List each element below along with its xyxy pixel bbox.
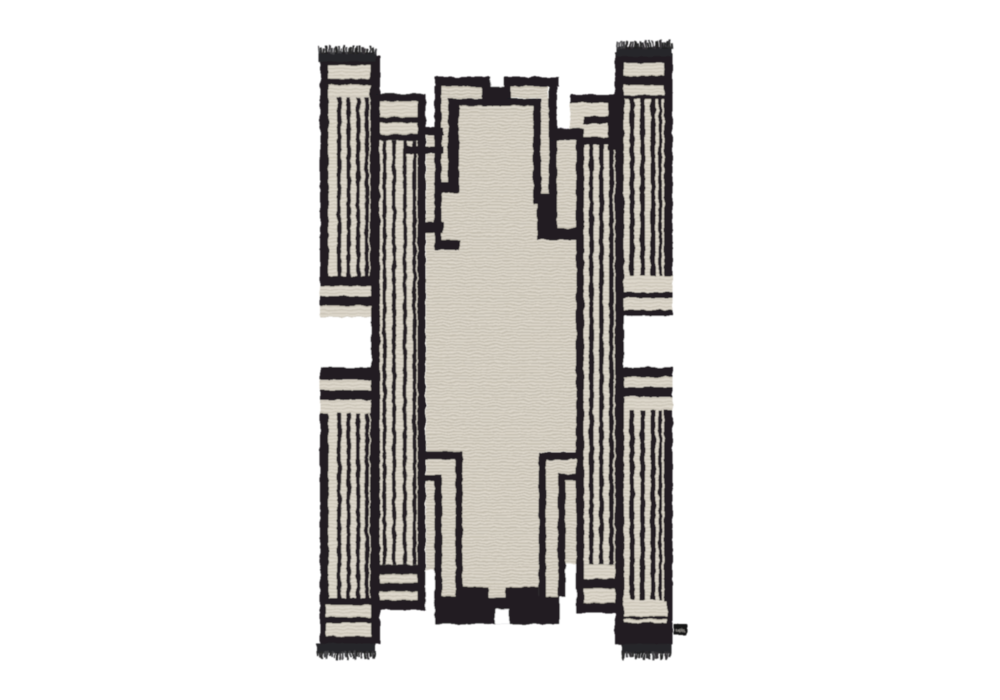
svg-text:tapis.: tapis. [675, 628, 685, 633]
